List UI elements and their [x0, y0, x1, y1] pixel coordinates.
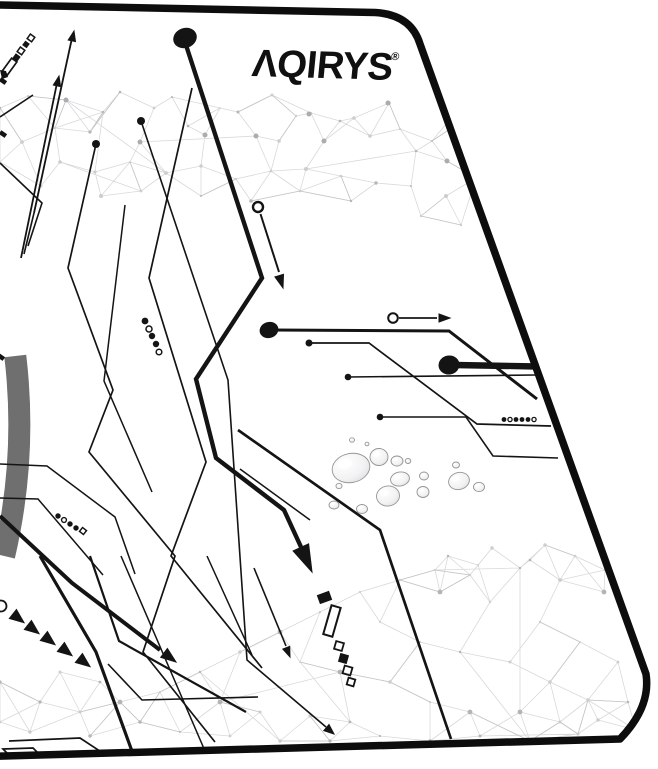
- svg-text:®: ®: [391, 51, 400, 63]
- svg-text:ΛQIRYS: ΛQIRYS: [250, 42, 395, 89]
